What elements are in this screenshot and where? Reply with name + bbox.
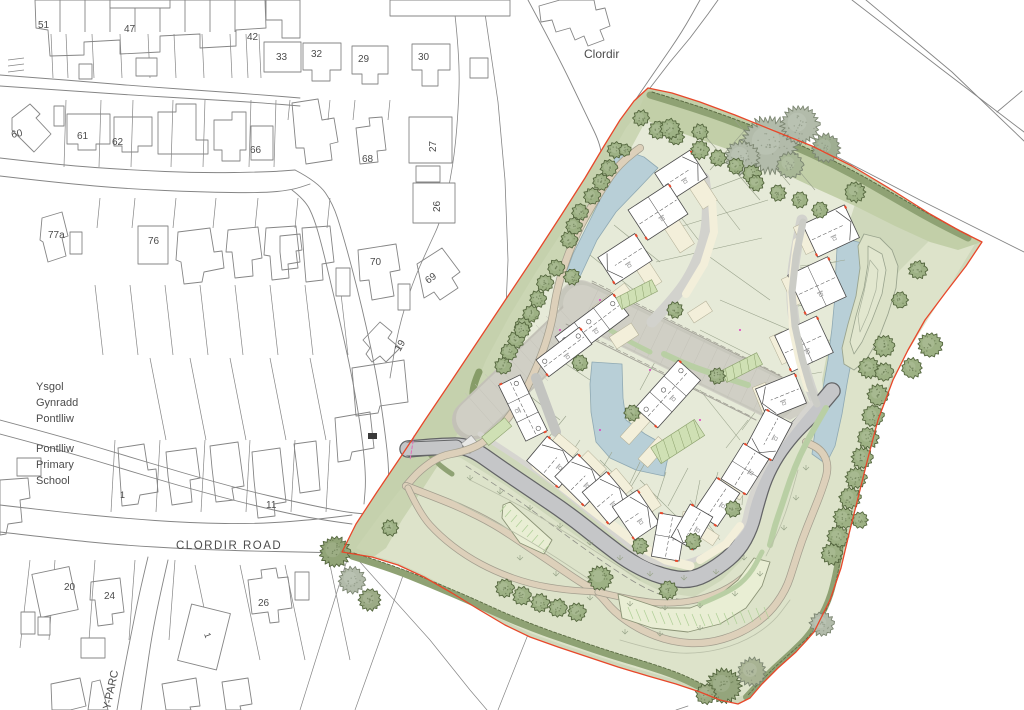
svg-text:76: 76: [148, 236, 160, 247]
svg-text:29: 29: [358, 54, 370, 65]
svg-text:CLORDIR ROAD: CLORDIR ROAD: [176, 540, 282, 552]
svg-text:26: 26: [258, 598, 270, 609]
svg-text:24: 24: [104, 591, 116, 602]
svg-text:68: 68: [362, 154, 374, 165]
svg-text:26: 26: [432, 200, 443, 212]
svg-text:66: 66: [250, 145, 262, 156]
svg-text:Primary: Primary: [36, 459, 74, 471]
svg-text:33: 33: [276, 52, 288, 63]
svg-text:62: 62: [112, 137, 124, 148]
svg-text:51: 51: [38, 20, 50, 31]
svg-text:27: 27: [428, 140, 439, 152]
svg-text:Pontlliw: Pontlliw: [36, 443, 74, 455]
svg-text:Pontlliw: Pontlliw: [36, 413, 74, 425]
svg-text:47: 47: [124, 24, 136, 35]
svg-text:20: 20: [64, 582, 76, 593]
svg-text:61: 61: [77, 131, 89, 142]
svg-text:32: 32: [311, 49, 323, 60]
svg-text:Gynradd: Gynradd: [36, 397, 78, 409]
svg-text:School: School: [36, 475, 70, 487]
svg-text:1: 1: [120, 490, 125, 500]
svg-text:Ysgol: Ysgol: [36, 381, 64, 393]
svg-text:11: 11: [266, 500, 277, 511]
svg-text:70: 70: [370, 257, 382, 268]
svg-text:30: 30: [418, 52, 430, 63]
svg-text:Clordir: Clordir: [584, 47, 619, 61]
svg-text:77a: 77a: [48, 230, 65, 241]
svg-text:42: 42: [247, 32, 259, 43]
